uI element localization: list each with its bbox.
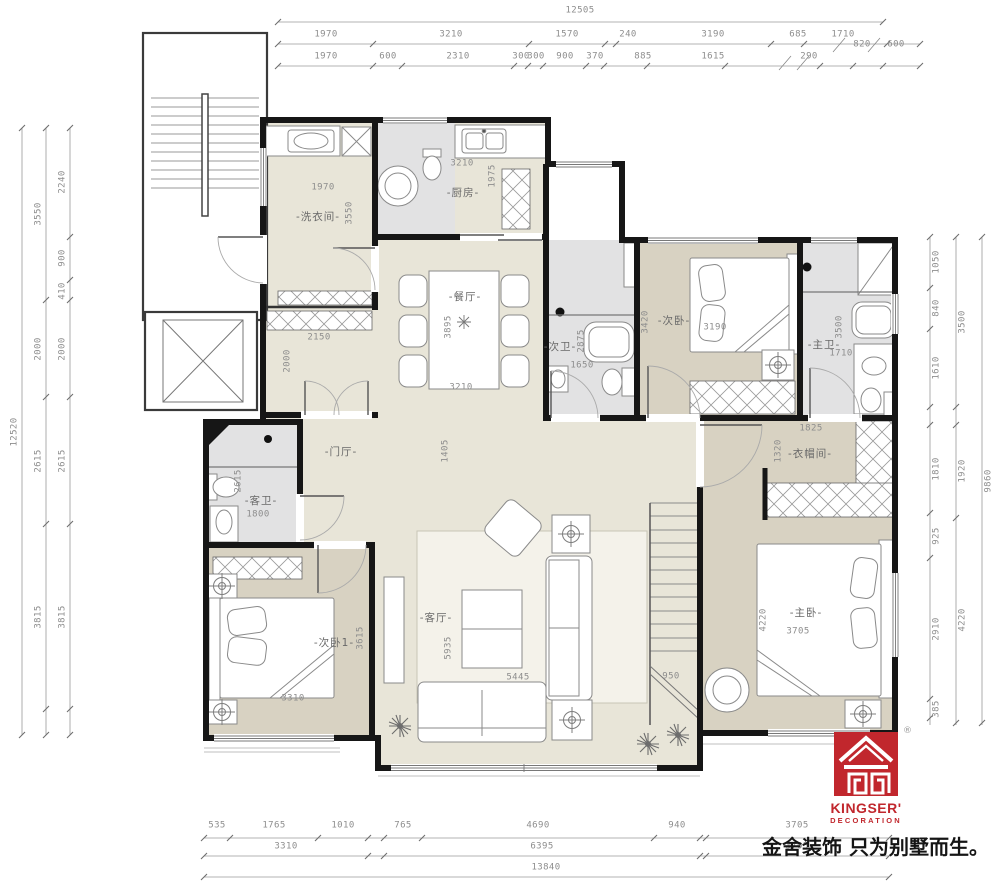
- dim-label: 3190: [701, 31, 724, 40]
- dim-label: 3190: [703, 324, 726, 333]
- dim-label: 1800: [246, 511, 269, 520]
- dim-label: 2000: [59, 337, 68, 360]
- dim-label: 3895: [445, 315, 454, 338]
- dim-label: 3705: [786, 628, 809, 637]
- window: [259, 148, 267, 206]
- dim-label: 820: [853, 41, 870, 50]
- logo-brand-text: KINGSER': [830, 800, 901, 816]
- dim-label: 3550: [346, 201, 355, 224]
- dim-label: 3310: [274, 843, 297, 852]
- dining-table: [399, 271, 529, 389]
- room-label-bedroom1: -次卧1-: [314, 638, 354, 649]
- brand-tagline: 金舍装饰 只为别墅而生。: [762, 831, 989, 860]
- dim-label: 2875: [578, 329, 587, 352]
- dim-label: 3815: [35, 605, 44, 628]
- dim-label: 3550: [35, 202, 44, 225]
- registered-mark: ®: [903, 726, 912, 736]
- window: [391, 764, 657, 772]
- dim-label: 3500: [836, 315, 845, 338]
- dim-label: 2000: [35, 337, 44, 360]
- dim-label: 290: [800, 53, 817, 62]
- dim-label: 1970: [314, 53, 337, 62]
- dim-label: 3310: [281, 695, 304, 704]
- sliding-door: [460, 233, 542, 241]
- window: [648, 236, 758, 244]
- logo-sub-text: DECORATION: [830, 816, 902, 825]
- dim-label: 765: [394, 822, 411, 831]
- room-label-bedroom2: -次卧-: [658, 316, 691, 327]
- dim-label: 3815: [59, 605, 68, 628]
- room-label-foyer: -门厅-: [325, 447, 358, 458]
- dim-label: 1765: [262, 822, 285, 831]
- window: [811, 236, 857, 244]
- dim-label: 3210: [439, 31, 462, 40]
- dim-label: 1320: [775, 439, 784, 462]
- window: [891, 294, 899, 334]
- room-label-master: -主卧-: [790, 608, 823, 619]
- dim-label: 600: [887, 41, 904, 50]
- dim-label: 4220: [959, 608, 968, 631]
- dim-label: 370: [586, 53, 603, 62]
- room-label-cloakroom: -衣帽间-: [788, 449, 832, 460]
- floorplan-page: 12505 1970 3210 1570 240 3190 685 1710 8…: [0, 0, 1000, 891]
- dim-label: 1975: [489, 164, 498, 187]
- dim-label: 1650: [570, 362, 593, 371]
- dim-label: 1610: [933, 356, 942, 379]
- dim-label: 2000: [284, 349, 293, 372]
- dim-label: 2150: [307, 334, 330, 343]
- dim-label: 9860: [985, 469, 994, 492]
- dim-label: 2615: [59, 449, 68, 472]
- plant-icon: [389, 715, 411, 737]
- dim-label: 940: [668, 822, 685, 831]
- room-label-dining: -餐厅-: [449, 292, 482, 303]
- dim-label: 2910: [933, 617, 942, 640]
- dim-label: 1920: [959, 459, 968, 482]
- dim-label: 3615: [357, 626, 366, 649]
- dim-label: 4220: [760, 608, 769, 631]
- dim-label: 925: [933, 527, 942, 544]
- dim-label: 1010: [331, 822, 354, 831]
- dim-label: 13840: [531, 864, 560, 873]
- kingser-logo: [834, 732, 898, 796]
- dim-label: 1810: [933, 457, 942, 480]
- dim-label: 900: [556, 53, 573, 62]
- dim-label: 3420: [642, 310, 651, 333]
- dim-label: 1970: [314, 31, 337, 40]
- plant-icon: [667, 724, 689, 746]
- dim-label: 2615: [235, 469, 244, 492]
- dim-label: 5935: [445, 636, 454, 659]
- dim-label: 12505: [565, 7, 594, 16]
- dim-label: 240: [619, 31, 636, 40]
- dim-label: 5445: [506, 674, 529, 683]
- dim-label: 410: [59, 282, 68, 299]
- dim-label-stair: 950: [662, 673, 679, 682]
- dim-label: 840: [933, 299, 942, 316]
- dim-label: 900: [59, 249, 68, 266]
- dim-label: 2240: [59, 170, 68, 193]
- dim-label: 535: [208, 822, 225, 831]
- dim-label: 385: [933, 700, 942, 717]
- room-label-guest-bath: -客卫-: [245, 496, 278, 507]
- elevator: [145, 312, 257, 410]
- window: [383, 116, 447, 124]
- room-label-laundry: -洗衣间-: [296, 212, 340, 223]
- dim-label: 1570: [555, 31, 578, 40]
- window: [891, 573, 899, 657]
- dim-label: 1970: [311, 184, 334, 193]
- room-label-living: -客厅-: [420, 613, 453, 624]
- dim-label: 4690: [526, 822, 549, 831]
- dim-label: 885: [634, 53, 651, 62]
- dim-label: 1050: [933, 250, 942, 273]
- dim-label: 2310: [446, 53, 469, 62]
- room-label-kitchen: -厨房-: [447, 188, 480, 199]
- dim-label: 685: [789, 31, 806, 40]
- dim-label: 3500: [959, 310, 968, 333]
- dim-label: 2615: [35, 449, 44, 472]
- kitchen-counter: [455, 125, 546, 158]
- dim-label: 1825: [799, 425, 822, 434]
- dim-label: 3210: [450, 160, 473, 169]
- dim-label: 600: [379, 53, 396, 62]
- stairwell: [143, 33, 267, 320]
- dim-label: 1710: [829, 350, 852, 359]
- floorplan-drawing: [0, 0, 1000, 891]
- dim-label: 6395: [530, 843, 553, 852]
- dim-label: 1615: [701, 53, 724, 62]
- laundry-fixtures: [266, 126, 371, 156]
- window: [214, 734, 334, 742]
- dim-label: 3210: [449, 384, 472, 393]
- dim-label: 1710: [831, 31, 854, 40]
- dim-label: 3705: [785, 822, 808, 831]
- plant-icon: [637, 733, 659, 755]
- dim-label: 12520: [11, 417, 20, 446]
- room-label-bath2: -次卫-: [544, 342, 577, 353]
- window: [556, 160, 612, 168]
- dim-label: 300: [527, 53, 544, 62]
- dim-label: 1405: [442, 439, 451, 462]
